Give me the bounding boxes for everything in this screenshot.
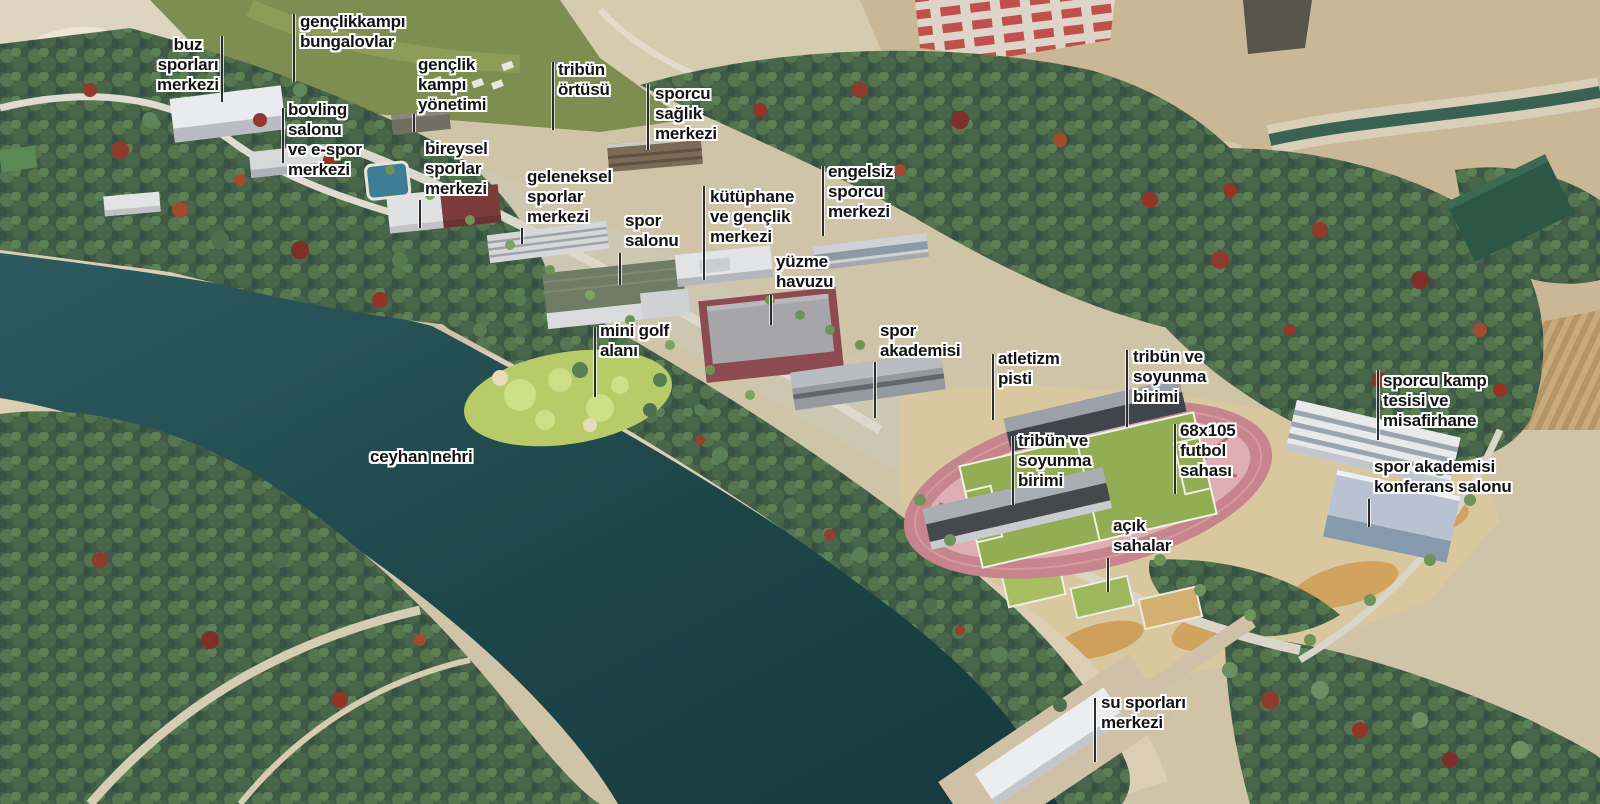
- leader-atletizm-pisti: [992, 354, 994, 420]
- label-sporcu-saglik-merkezi: sporcu sağlık merkezi: [655, 84, 717, 144]
- dark-building-topright: [1243, 0, 1312, 54]
- terrain-render: [0, 0, 1600, 804]
- leader-tribun-kuzey: [1126, 350, 1128, 427]
- label-tribun-soyunma-guney: tribün ve soyunma birimi: [1018, 431, 1091, 491]
- label-kutuphane: kütüphane ve gençlik merkezi: [710, 187, 794, 247]
- label-konferans-salonu: spor akademisi konferans salonu: [1374, 457, 1512, 497]
- label-bovling-salonu: bovling salonu ve e-spor merkezi: [288, 100, 362, 180]
- leader-spor-akademisi: [874, 362, 876, 418]
- label-su-sporlari-merkezi: su sporları merkezi: [1101, 693, 1186, 733]
- leader-engelsiz: [822, 166, 824, 236]
- leader-genclik-kampi-yonetimi: [413, 114, 415, 132]
- leader-tribun-ortusu: [552, 62, 554, 130]
- label-atletizm-pisti: atletizm pisti: [998, 349, 1060, 389]
- leader-futbol-sahasi: [1174, 424, 1176, 494]
- label-buz-sporlari-merkezi: buz sporları merkezi: [148, 35, 228, 95]
- leader-genclikkampi-bungalovlar: [293, 14, 295, 82]
- leader-acik-sahalar: [1107, 558, 1109, 592]
- leader-bovling: [282, 108, 284, 163]
- label-spor-akademisi: spor akademisi: [880, 321, 960, 361]
- leader-spor-salonu: [619, 253, 621, 285]
- label-tribun-soyunma-kuzey: tribün ve soyunma birimi: [1133, 347, 1206, 407]
- label-acik-sahalar: açık sahalar: [1113, 516, 1171, 556]
- label-ceyhan-nehri: ceyhan nehri: [370, 447, 472, 467]
- label-spor-salonu: spor salonu: [625, 211, 679, 251]
- leader-sporcu-saglik-merkezi: [647, 84, 649, 150]
- leader-yuzme-havuzu: [770, 295, 772, 325]
- leader-tribun-guney: [1012, 436, 1014, 505]
- masterplan-screenshot: buz sporları merkezi gençlikkampı bungal…: [0, 0, 1600, 804]
- label-sporcu-kamp-tesisi: sporcu kamp tesisi ve misafirhane: [1383, 371, 1487, 431]
- leader-kutuphane: [703, 186, 705, 280]
- label-mini-golf: mini golf alanı: [600, 321, 669, 361]
- leader-bireysel: [419, 200, 421, 228]
- label-engelsiz-sporcu: engelsiz sporcu merkezi: [828, 162, 893, 222]
- label-yuzme-havuzu: yüzme havuzu: [776, 252, 833, 292]
- leader-konferans: [1368, 499, 1370, 527]
- label-bireysel-sporlar: bireysel sporlar merkezi: [425, 139, 488, 199]
- leader-mini-golf: [594, 327, 596, 397]
- label-genclikkampi-bungalovlar: gençlikkampı bungalovlar: [300, 12, 405, 52]
- leader-su-sporlari: [1094, 698, 1096, 762]
- leader-sporcu-kamp: [1377, 370, 1379, 440]
- leader-geleneksel: [521, 228, 523, 244]
- label-genclik-kampi-yonetimi: gençlik kampı yönetimi: [418, 55, 486, 115]
- label-geleneksel-sporlar: geleneksel sporlar merkezi: [527, 167, 612, 227]
- label-futbol-sahasi: 68x105 futbol sahası: [1180, 421, 1236, 481]
- label-tribun-ortusu: tribün örtüsü: [558, 60, 610, 100]
